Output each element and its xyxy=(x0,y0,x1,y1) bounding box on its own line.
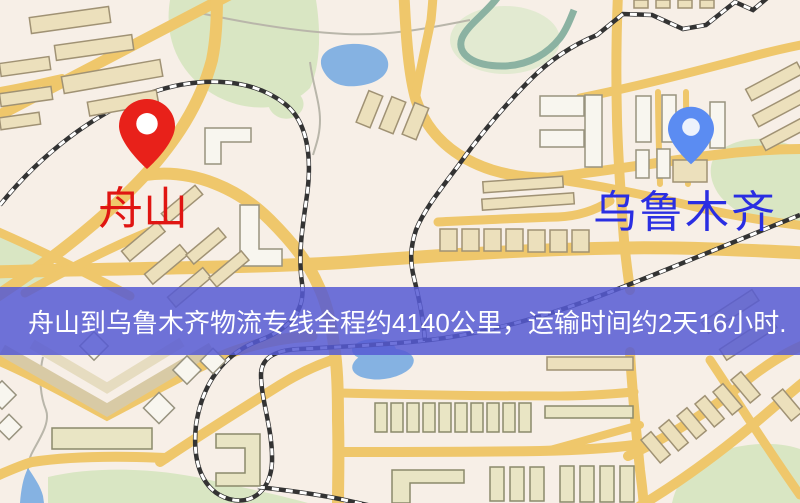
route-info-banner: 舟山到乌鲁木齐物流专线全程约4140公里，运输时间约2天16小时. xyxy=(0,287,800,355)
logistics-route-map: 舟山到乌鲁木齐物流专线全程约4140公里，运输时间约2天16小时. 舟山 乌鲁木… xyxy=(0,0,800,503)
map-canvas xyxy=(0,0,800,503)
destination-label[interactable]: 乌鲁木齐 xyxy=(586,176,784,240)
route-info-text: 舟山到乌鲁木齐物流专线全程约4140公里，运输时间约2天16小时. xyxy=(28,303,786,340)
origin-label[interactable]: 舟山 xyxy=(84,172,202,237)
pin-hole xyxy=(136,113,157,134)
origin-pin-icon[interactable] xyxy=(119,99,175,169)
destination-pin-icon[interactable] xyxy=(668,103,714,168)
pin-hole xyxy=(682,118,700,136)
